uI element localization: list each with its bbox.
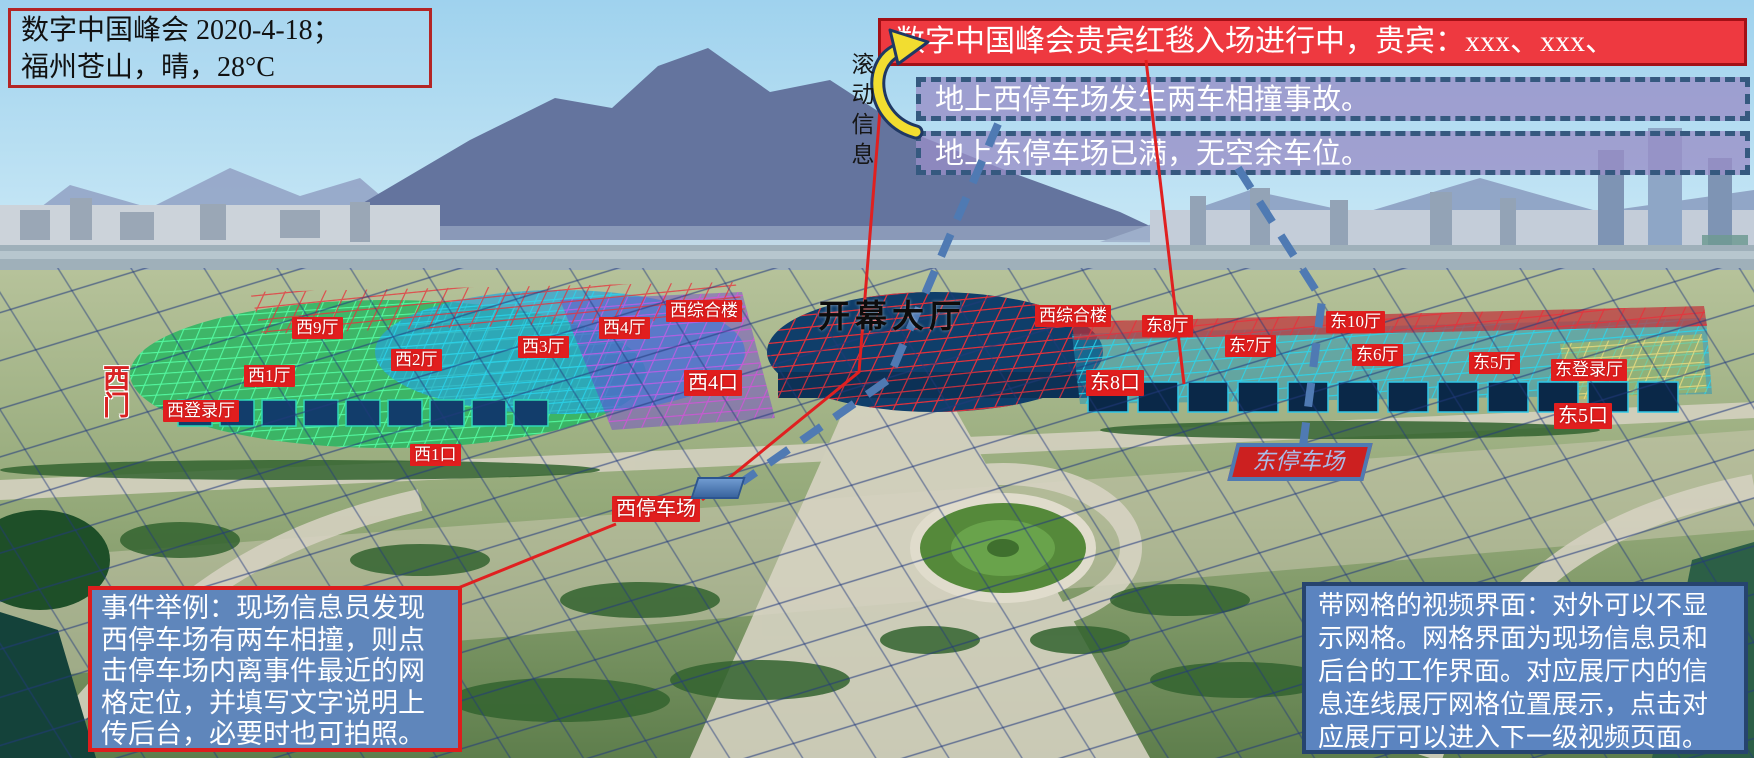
label-west-gate[interactable]: 西门 xyxy=(100,364,127,418)
label-east-gate-5[interactable]: 东5口 xyxy=(1554,403,1612,429)
banner-west-parking-accident[interactable]: 地上西停车场发生两车相撞事故。 xyxy=(916,77,1750,121)
west-parking-incident-marker[interactable] xyxy=(690,477,745,499)
grid-interface-note: 带网格的视频界面：对外可以不显示网格。网格界面为现场信息员和后台的工作界面。对应… xyxy=(1302,582,1748,754)
east-parking-marker[interactable]: 东停车场 xyxy=(1227,443,1372,481)
label-east-hall-10[interactable]: 东10厅 xyxy=(1326,311,1385,333)
label-west-gate-4[interactable]: 西4口 xyxy=(684,370,742,396)
label-west-hall-4[interactable]: 西4厅 xyxy=(599,317,650,339)
label-west-parking[interactable]: 西停车场 xyxy=(612,496,700,522)
event-info-line1: 数字中国峰会 2020-4-18； xyxy=(21,12,419,49)
label-west-complex-building-2[interactable]: 西综合楼 xyxy=(1035,305,1111,327)
label-east-hall-6[interactable]: 东6厅 xyxy=(1352,344,1403,366)
label-west-complex-building[interactable]: 西综合楼 xyxy=(666,300,742,322)
label-east-hall-8[interactable]: 东8厅 xyxy=(1142,315,1193,337)
label-opening-ceremony-hall[interactable]: 开幕大厅 xyxy=(818,291,966,337)
label-east-registration-hall[interactable]: 东登录厅 xyxy=(1551,359,1627,381)
event-info-box: 数字中国峰会 2020-4-18； 福州苍山，晴，28°C xyxy=(8,8,432,88)
label-east-hall-7[interactable]: 东7厅 xyxy=(1225,335,1276,357)
label-west-hall-2[interactable]: 西2厅 xyxy=(391,349,442,371)
label-east-gate-8[interactable]: 东8口 xyxy=(1086,370,1144,396)
label-west-gate-1[interactable]: 西1口 xyxy=(410,444,461,466)
monitoring-ui: { "header": { "event_info": { "line1": "… xyxy=(0,0,1754,758)
label-west-hall-1[interactable]: 西1厅 xyxy=(244,365,295,387)
label-west-hall-3[interactable]: 西3厅 xyxy=(518,336,569,358)
scrolling-info-label: 滚动信息 xyxy=(843,52,877,172)
event-info-line2: 福州苍山，晴，28°C xyxy=(21,49,419,86)
label-east-hall-5[interactable]: 东5厅 xyxy=(1469,352,1520,374)
event-example-note: 事件举例：现场信息员发现西停车场有两车相撞，则点击停车场内离事件最近的网格定位，… xyxy=(88,586,462,752)
label-west-hall-9[interactable]: 西9厅 xyxy=(292,317,343,339)
banner-vip-red-carpet[interactable]: 数字中国峰会贵宾红毯入场进行中，贵宾：xxx、xxx、 xyxy=(878,18,1747,66)
banner-east-parking-full[interactable]: 地上东停车场已满，无空余车位。 xyxy=(916,131,1750,175)
label-west-registration-hall[interactable]: 西登录厅 xyxy=(163,400,239,422)
